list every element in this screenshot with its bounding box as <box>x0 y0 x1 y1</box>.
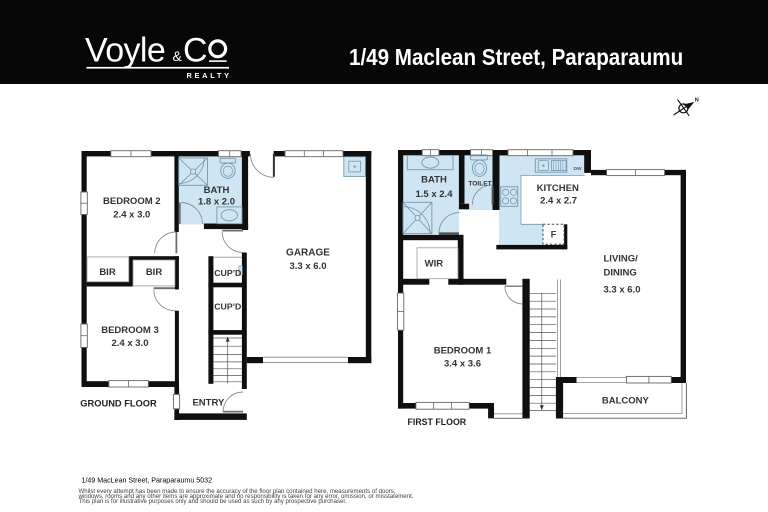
svg-text:REALTY: REALTY <box>187 71 232 80</box>
svg-text:BATH: BATH <box>421 175 447 186</box>
svg-text:BATH: BATH <box>204 185 230 196</box>
svg-text:WIR: WIR <box>425 259 444 270</box>
svg-text:N: N <box>695 98 699 104</box>
svg-text:&: & <box>173 48 183 64</box>
svg-text:3.3 x 6.0: 3.3 x 6.0 <box>290 261 327 272</box>
svg-text:DW: DW <box>574 166 582 172</box>
svg-text:C: C <box>183 32 208 70</box>
svg-text:This plan is for illustrative: This plan is for illustrative purposes o… <box>79 498 348 505</box>
svg-text:3.4 x 3.6: 3.4 x 3.6 <box>444 358 481 369</box>
svg-text:LIVING/: LIVING/ <box>604 253 639 264</box>
svg-text:TOILET: TOILET <box>468 180 491 187</box>
svg-text:1.5 x 2.4: 1.5 x 2.4 <box>416 189 454 200</box>
svg-text:CUP’D: CUP’D <box>214 268 241 278</box>
svg-text:KITCHEN: KITCHEN <box>537 183 579 194</box>
svg-text:BEDROOM 2: BEDROOM 2 <box>103 196 161 207</box>
svg-text:CUP’D: CUP’D <box>214 302 241 312</box>
svg-text:BEDROOM 1: BEDROOM 1 <box>434 346 492 357</box>
svg-text:2.4 x 2.7: 2.4 x 2.7 <box>540 196 577 207</box>
svg-text:3.3 x 6.0: 3.3 x 6.0 <box>604 285 641 296</box>
svg-text:1/49 Maclean Street, Paraparau: 1/49 Maclean Street, Paraparaumu <box>349 44 683 70</box>
svg-text:BIR: BIR <box>99 267 116 278</box>
svg-text:BEDROOM 3: BEDROOM 3 <box>101 325 159 336</box>
svg-text:1/49 MacLean Street, Paraparau: 1/49 MacLean Street, Paraparaumu 5032 <box>82 477 213 485</box>
svg-text:Voyle: Voyle <box>85 32 165 70</box>
svg-text:BALCONY: BALCONY <box>602 396 650 407</box>
svg-text:DINING: DINING <box>604 268 637 279</box>
svg-text:BIR: BIR <box>146 267 163 278</box>
svg-text:FIRST FLOOR: FIRST FLOOR <box>408 417 467 427</box>
svg-text:2.4 x 3.0: 2.4 x 3.0 <box>112 338 149 349</box>
svg-text:GROUND FLOOR: GROUND FLOOR <box>80 398 157 408</box>
svg-text:ENTRY: ENTRY <box>192 397 225 408</box>
svg-text:2.4 x 3.0: 2.4 x 3.0 <box>113 209 150 220</box>
svg-text:GARAGE: GARAGE <box>286 247 330 258</box>
svg-text:1.8 x 2.0: 1.8 x 2.0 <box>198 197 235 208</box>
svg-text:F: F <box>551 230 557 241</box>
